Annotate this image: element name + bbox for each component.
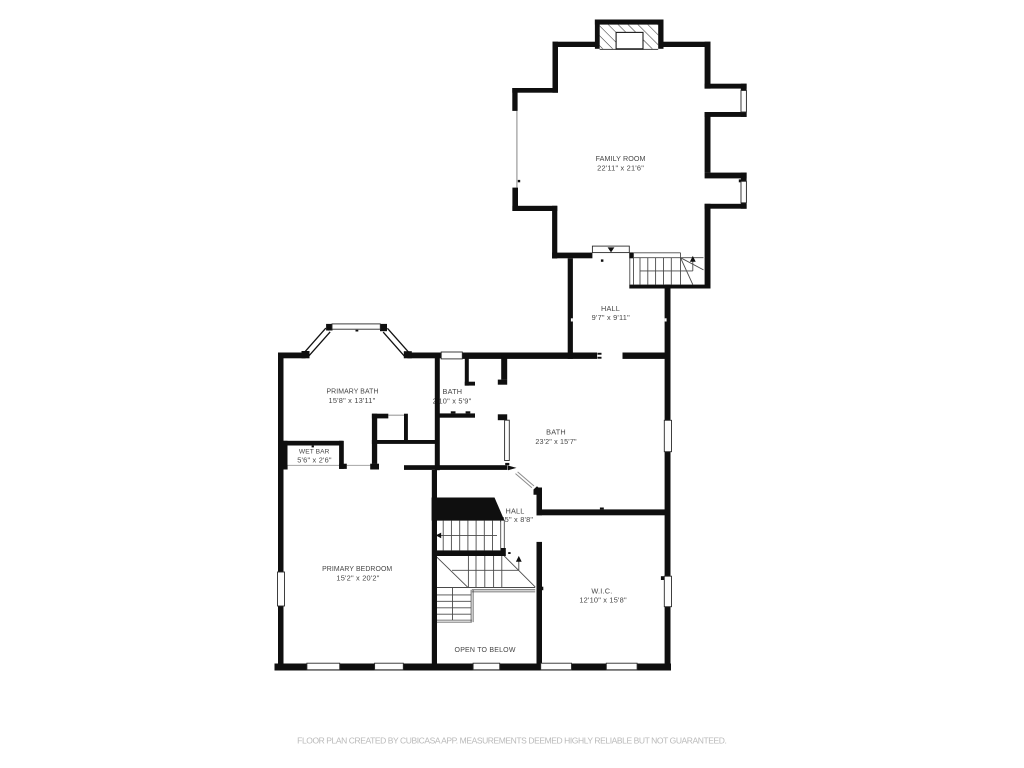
svg-text:FLOOR PLAN CREATED BY CUBICASA: FLOOR PLAN CREATED BY CUBICASA APP. MEAS… — [297, 736, 726, 746]
svg-text:BATH: BATH — [443, 387, 463, 396]
svg-text:HALL: HALL — [601, 304, 620, 313]
svg-text:W.I.C.: W.I.C. — [591, 587, 612, 596]
svg-text:12'10" x 15'8": 12'10" x 15'8" — [579, 595, 627, 604]
svg-text:15'2" x 20'2": 15'2" x 20'2" — [336, 574, 379, 583]
svg-text:FAMILY ROOM: FAMILY ROOM — [596, 155, 646, 163]
svg-text:BATH: BATH — [546, 428, 566, 437]
svg-text:9'7" x 9'11": 9'7" x 9'11" — [592, 313, 630, 322]
svg-text:5'6" x 2'6": 5'6" x 2'6" — [297, 456, 332, 465]
svg-text:OPEN TO BELOW: OPEN TO BELOW — [455, 647, 516, 654]
svg-text:PRIMARY BATH: PRIMARY BATH — [326, 388, 378, 395]
svg-text:15'8" x 13'11": 15'8" x 13'11" — [329, 396, 376, 405]
svg-text:23'2" x 15'7": 23'2" x 15'7" — [535, 437, 577, 446]
svg-text:22'11" x 21'6": 22'11" x 21'6" — [597, 163, 644, 172]
svg-text:WET BAR: WET BAR — [299, 449, 330, 456]
svg-text:PRIMARY BEDROOM: PRIMARY BEDROOM — [322, 566, 392, 573]
